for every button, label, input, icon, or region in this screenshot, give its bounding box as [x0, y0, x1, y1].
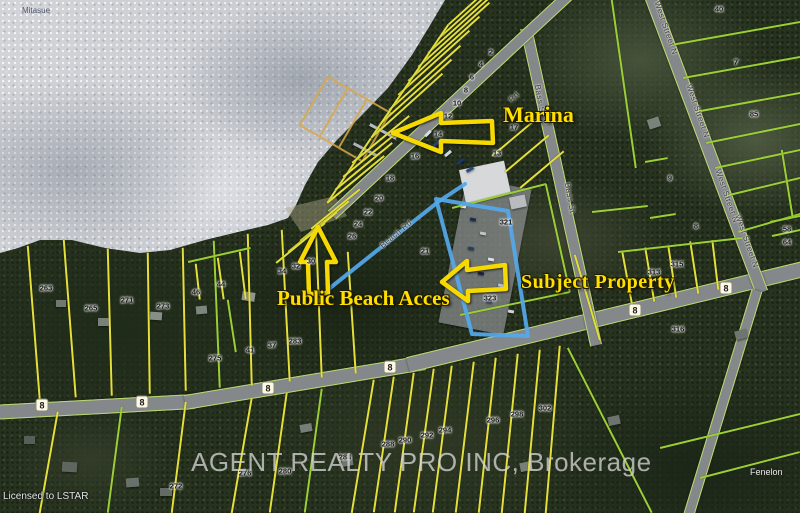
map-canvas[interactable]: 2468101214161820222426303234211317321323…: [0, 0, 800, 513]
public-beach-access-label: Public Beach Acces: [277, 286, 450, 311]
parcel-number: 10: [453, 99, 461, 108]
parcel-number: 13: [493, 149, 501, 158]
parcel-number: 315: [671, 260, 684, 269]
lake-name-label: Mitasue: [22, 6, 50, 15]
parcel-number: 22: [364, 208, 372, 217]
parcel-number: 290: [399, 436, 412, 445]
parcel-number: 21: [421, 247, 429, 256]
road-shield: 8: [136, 396, 149, 409]
road-shield: 8: [384, 361, 397, 374]
parcel-number: 9: [668, 174, 672, 183]
parcel-number: 37: [268, 341, 276, 350]
place-name-label: Fenelon: [750, 467, 783, 477]
parcel-number: 271: [121, 296, 134, 305]
parcel-number: 16: [411, 152, 419, 161]
parcel-number: 8: [694, 222, 698, 231]
parcel-number: 64: [783, 238, 791, 247]
parcel-number: 44: [217, 280, 225, 289]
parcel-number: 24: [354, 220, 362, 229]
parcel-number: 4: [479, 60, 483, 69]
parcel-number: 30: [307, 257, 315, 266]
parcel-number: 7: [734, 58, 738, 67]
parcel-number: 302: [539, 404, 552, 413]
parcel-number: 85: [750, 110, 758, 119]
parcel-number: 12: [444, 112, 452, 121]
subject-property-label: Subject Property: [521, 271, 675, 294]
road-shield: 8: [262, 382, 275, 395]
parcel-number: 283: [289, 337, 302, 346]
brokerage-watermark: AGENT REALTY PRO INC, Brokerage: [191, 447, 652, 478]
parcel-number: 26: [348, 232, 356, 241]
license-text: Licensed to LSTAR: [3, 491, 88, 502]
parcel-number: 8: [464, 86, 468, 95]
parcel-number: 2: [489, 48, 493, 57]
parcel-number: 263: [40, 284, 53, 293]
parcel-number: 273: [157, 302, 170, 311]
parcel-number: 41: [246, 346, 254, 355]
road-shield: 8: [720, 282, 733, 295]
parcel-number: 323: [484, 294, 497, 303]
parcel-number: 20: [375, 194, 383, 203]
parcel-number: 32: [292, 262, 300, 271]
road-shield: 8: [629, 304, 642, 317]
parcel-number: 46: [192, 288, 200, 297]
parcel-number: 14: [434, 130, 442, 139]
parcel-number: 40: [715, 5, 723, 14]
marina-label: Marina: [503, 102, 574, 128]
parcel-number: 296: [487, 416, 500, 425]
parcel-number: 272: [170, 482, 183, 491]
parcel-number: 18: [386, 174, 394, 183]
beach-access-arrow: [300, 227, 336, 294]
parcel-number: 6: [470, 73, 474, 82]
parcel-number: 298: [511, 410, 524, 419]
parcel-number: 292: [421, 431, 434, 440]
parcel-number: 58: [783, 225, 791, 234]
parcel-number: 265: [85, 304, 98, 313]
parcel-number: 321: [500, 218, 513, 227]
parcel-number: 294: [439, 426, 452, 435]
road-shield: 8: [36, 399, 49, 412]
parcel-number: 316: [672, 325, 685, 334]
parcel-number: 34: [278, 267, 286, 276]
parcel-number: 275: [209, 354, 222, 363]
